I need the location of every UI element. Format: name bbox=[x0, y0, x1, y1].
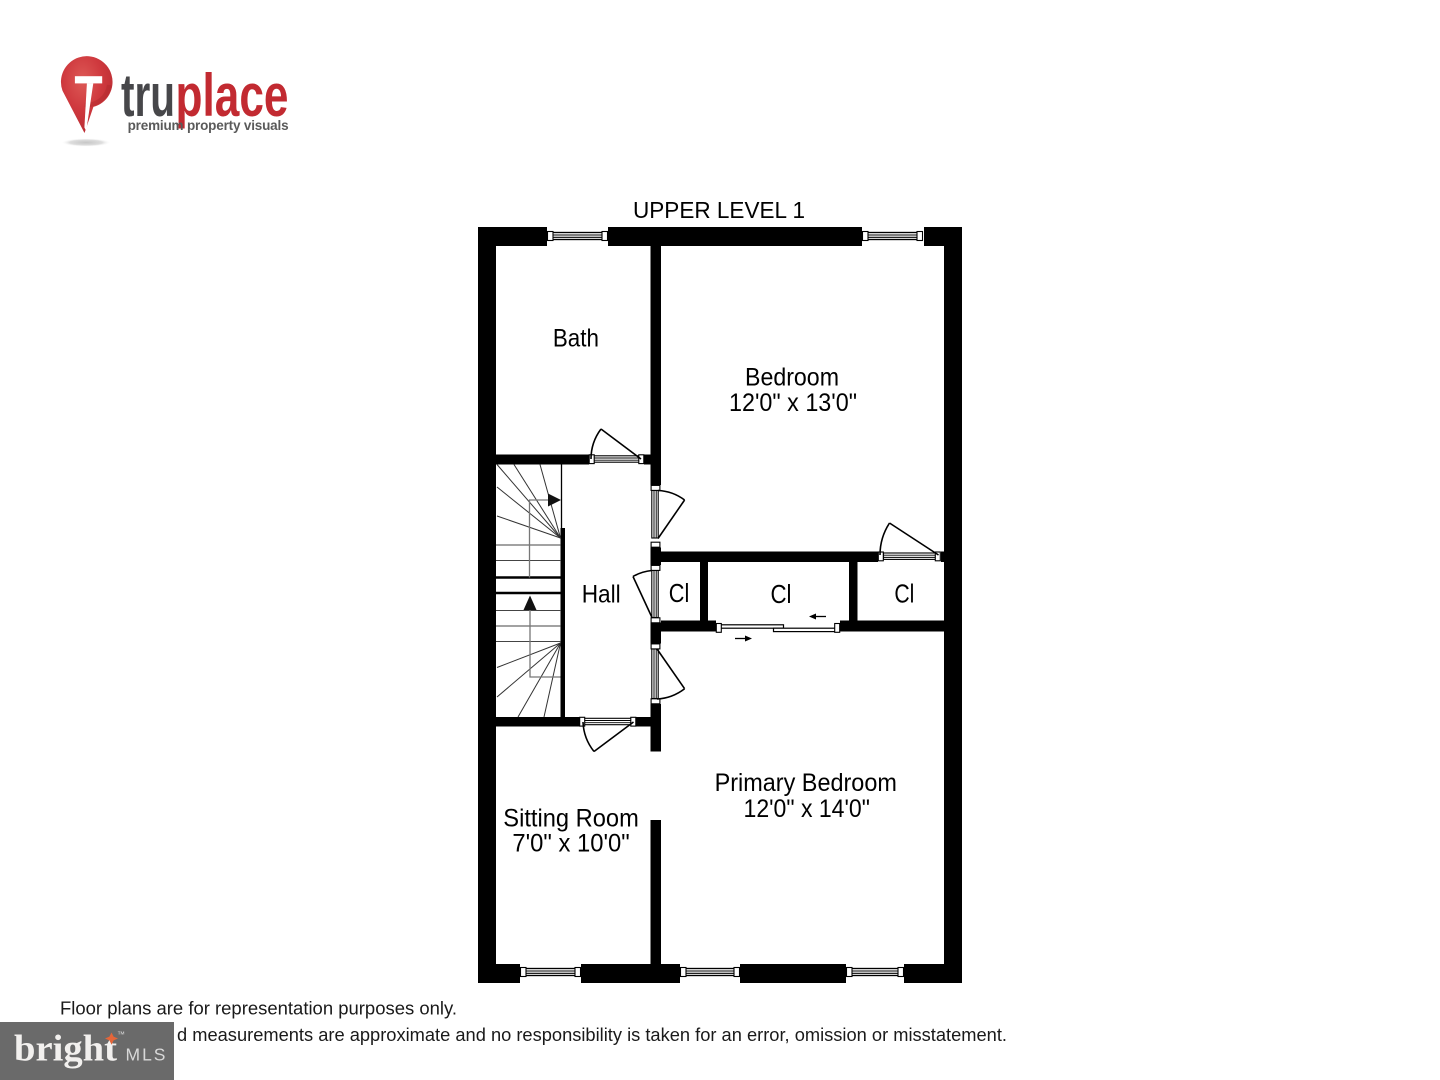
svg-text:bright: bright bbox=[14, 1029, 118, 1070]
svg-text:d measurements are approximate: d measurements are approximate and no re… bbox=[177, 1025, 1007, 1045]
svg-text:Sitting Room: Sitting Room bbox=[503, 804, 639, 832]
svg-text:Bedroom: Bedroom bbox=[745, 364, 839, 392]
svg-text:UPPER LEVEL 1: UPPER LEVEL 1 bbox=[633, 197, 805, 223]
svg-text:Cl: Cl bbox=[669, 578, 690, 608]
svg-text:Cl: Cl bbox=[894, 579, 914, 609]
svg-text:Cl: Cl bbox=[771, 579, 792, 609]
svg-text:Primary Bedroom: Primary Bedroom bbox=[715, 769, 897, 797]
svg-text:MLS: MLS bbox=[126, 1045, 168, 1065]
svg-text:premium property visuals: premium property visuals bbox=[128, 118, 289, 133]
svg-text:Hall: Hall bbox=[582, 581, 621, 609]
svg-text:12'0" x 14'0": 12'0" x 14'0" bbox=[744, 795, 870, 823]
svg-text:™: ™ bbox=[117, 1030, 125, 1039]
svg-text:Bath: Bath bbox=[553, 325, 599, 353]
svg-text:7'0" x 10'0": 7'0" x 10'0" bbox=[512, 830, 629, 858]
svg-text:12'0" x 13'0": 12'0" x 13'0" bbox=[729, 389, 857, 417]
svg-text:Floor plans are for representa: Floor plans are for representation purpo… bbox=[60, 999, 457, 1019]
